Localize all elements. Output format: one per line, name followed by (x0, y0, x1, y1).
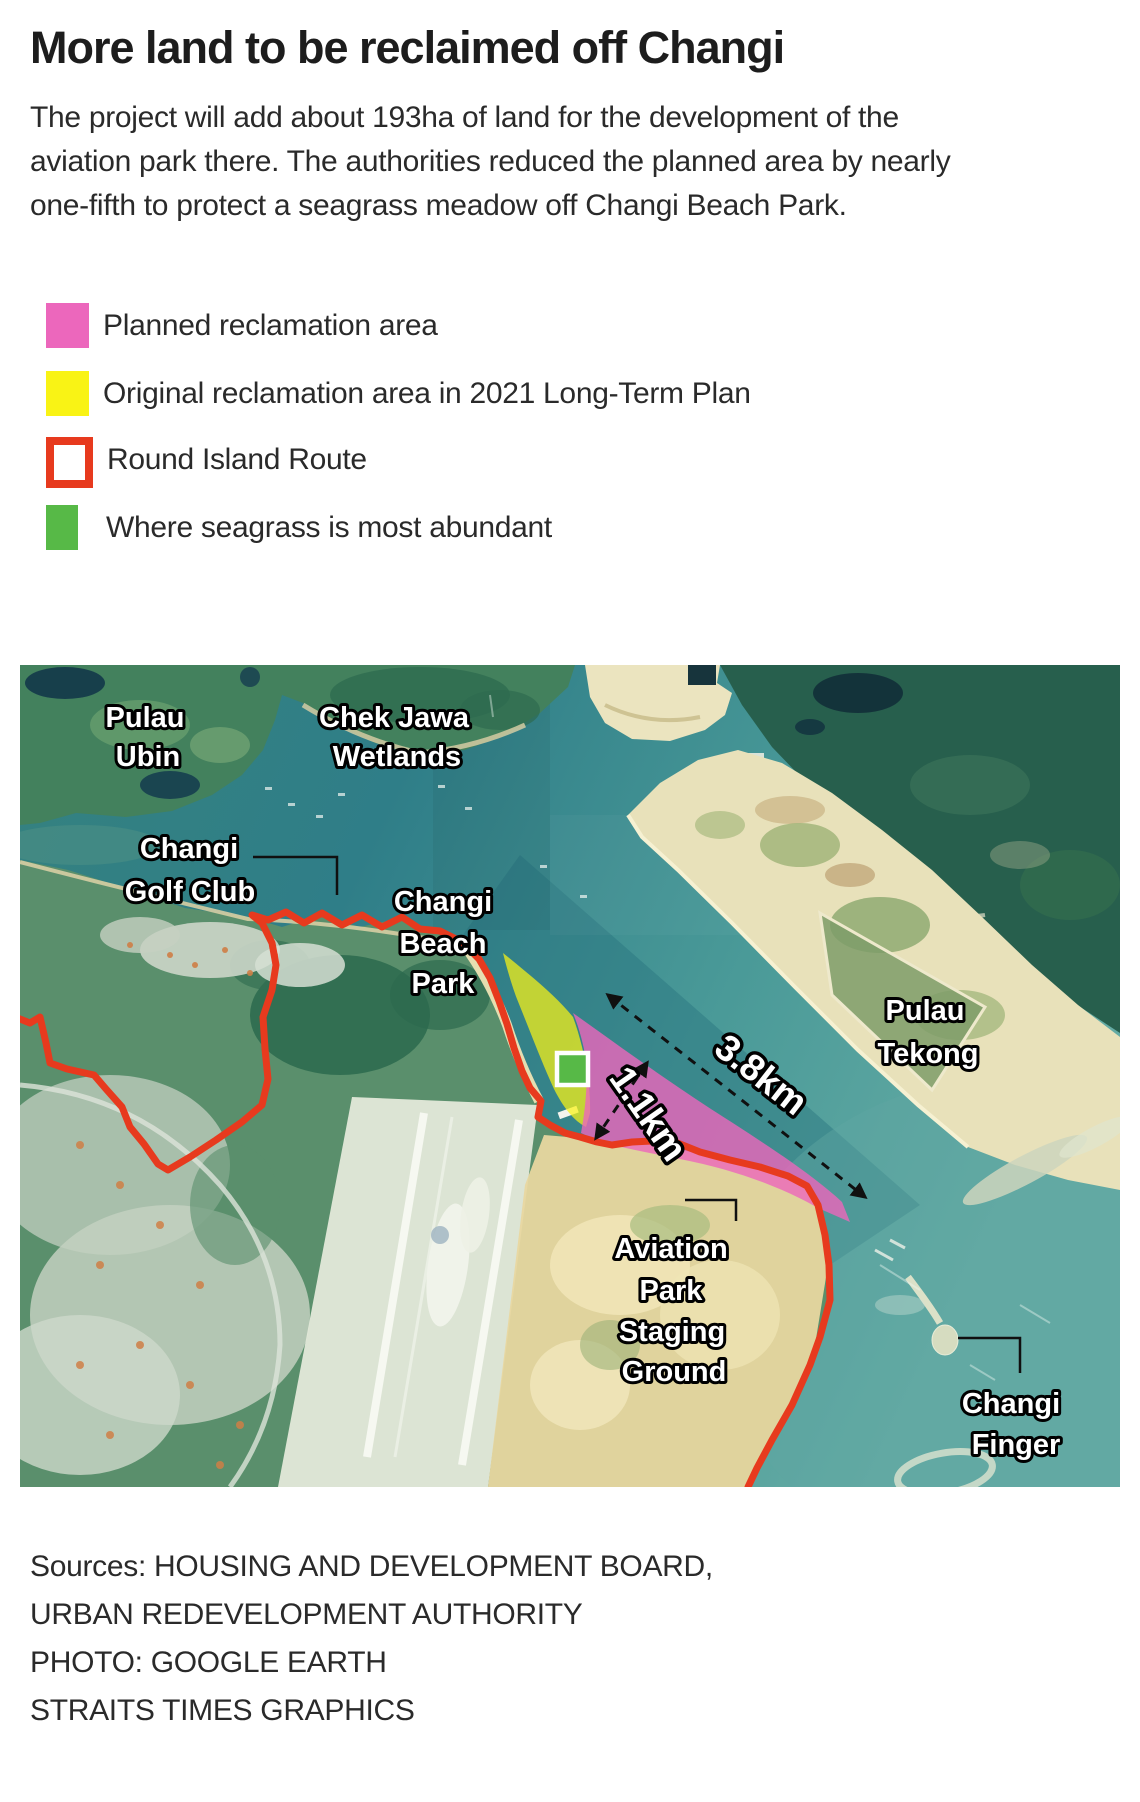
legend-label-original: Original reclamation area in 2021 Long-T… (103, 371, 751, 417)
legend-item-seagrass: Where seagrass is most abundant (46, 505, 552, 551)
label-changi-beach-park-1: Changi (394, 886, 492, 918)
label-changi-golf-club-2: Golf Club (125, 876, 255, 908)
label-aviation-park-4: Ground (622, 1356, 727, 1388)
satellite-map: Pulau Ubin Chek Jawa Wetlands Changi Gol… (20, 665, 1120, 1487)
seagrass-swatch (46, 505, 78, 550)
infographic-page: More land to be reclaimed off Changi The… (0, 0, 1140, 1802)
seagrass-marker (557, 1053, 588, 1085)
legend-label-planned: Planned reclamation area (103, 303, 438, 349)
planned-area-swatch (46, 303, 89, 348)
intro-paragraph: The project will add about 193ha of land… (30, 96, 980, 228)
sources-block: Sources: HOUSING AND DEVELOPMENT BOARD, … (30, 1543, 713, 1735)
sources-line-4: STRAITS TIMES GRAPHICS (30, 1687, 713, 1735)
label-aviation-park-2: Park (640, 1275, 704, 1307)
label-changi-beach-park-2: Beach (399, 928, 486, 960)
legend-item-route: Round Island Route (46, 437, 367, 488)
legend-label-seagrass: Where seagrass is most abundant (106, 505, 552, 551)
sources-line-3: PHOTO: GOOGLE EARTH (30, 1639, 713, 1687)
label-changi-beach-park-3: Park (412, 968, 476, 1000)
label-aviation-park-1: Aviation (614, 1233, 727, 1265)
label-aviation-park-3: Staging (619, 1316, 725, 1348)
label-chek-jawa-2: Wetlands (333, 741, 461, 773)
legend-item-original: Original reclamation area in 2021 Long-T… (46, 371, 751, 417)
round-island-route-swatch (46, 437, 93, 488)
label-changi-golf-club-1: Changi (140, 833, 238, 865)
label-pulau-tekong-2: Tekong (878, 1038, 979, 1070)
original-area-swatch (46, 371, 89, 416)
map-canvas: Pulau Ubin Chek Jawa Wetlands Changi Gol… (20, 665, 1120, 1487)
legend-item-planned: Planned reclamation area (46, 303, 438, 349)
sources-line-2: URBAN REDEVELOPMENT AUTHORITY (30, 1591, 713, 1639)
label-pulau-ubin-2: Ubin (116, 741, 180, 773)
label-changi-finger-2: Finger (972, 1429, 1061, 1461)
label-pulau-tekong-1: Pulau (886, 995, 965, 1027)
label-changi-finger-1: Changi (962, 1388, 1060, 1420)
page-title: More land to be reclaimed off Changi (30, 22, 784, 74)
sources-line-1: Sources: HOUSING AND DEVELOPMENT BOARD, (30, 1543, 713, 1591)
label-chek-jawa-1: Chek Jawa (319, 702, 470, 734)
legend-label-route: Round Island Route (107, 437, 367, 483)
label-pulau-ubin-1: Pulau (106, 702, 185, 734)
